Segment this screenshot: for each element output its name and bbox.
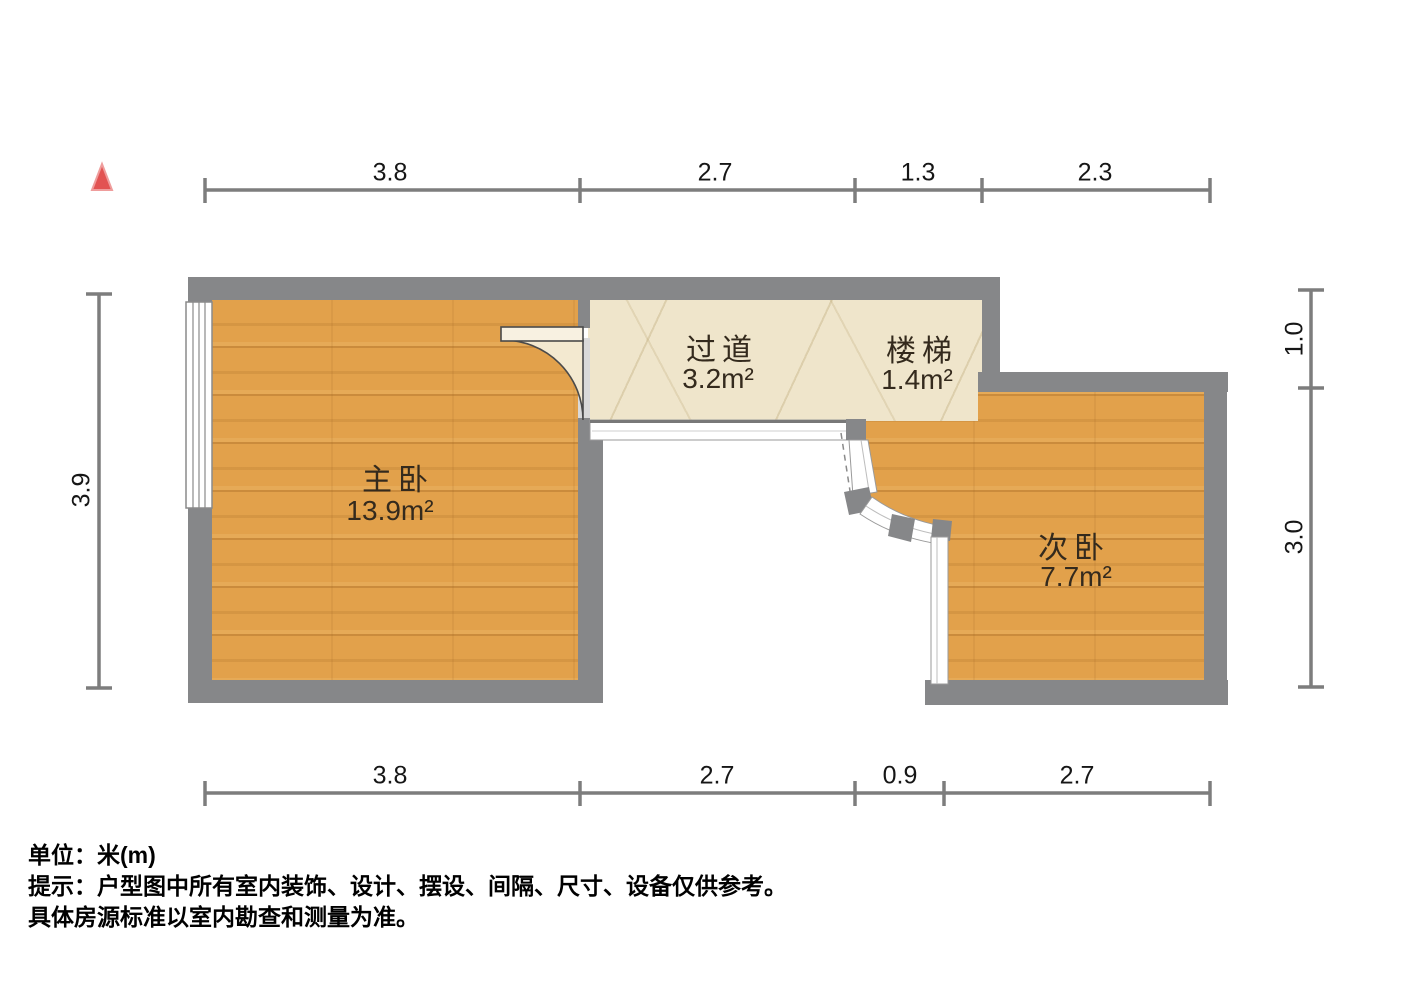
room-area-second-bedroom: 7.7m²	[1040, 561, 1112, 593]
stair-railing	[590, 419, 952, 684]
wall-door-jamb-top	[578, 300, 590, 328]
floor-plan: 主卧 13.9m² 过道 3.2m² 楼梯 1.4m² 次卧 7.7m² 3.8…	[0, 0, 1415, 982]
door	[501, 327, 590, 420]
dim-top-4: 2.3	[1078, 159, 1113, 188]
wall-right	[1204, 372, 1227, 705]
room-area-master-bedroom: 13.9m²	[346, 495, 433, 527]
dim-top-3: 1.3	[901, 159, 936, 188]
north-arrow-icon	[92, 164, 112, 190]
railing-post	[888, 514, 915, 542]
wall-bottom-master	[188, 680, 603, 703]
wall-stair-right	[982, 277, 1000, 372]
dim-left-1: 3.9	[68, 473, 97, 508]
room-name-master-bedroom: 主卧	[362, 455, 434, 499]
railing-post	[846, 419, 866, 440]
plan-graphics	[0, 0, 1415, 982]
room-area-corridor: 3.2m²	[682, 363, 754, 395]
door-swing-arc	[503, 340, 583, 420]
wall-top	[188, 277, 1000, 300]
dimension-lines	[86, 178, 1324, 806]
dim-right-1: 1.0	[1281, 322, 1310, 357]
dim-right-2: 3.0	[1281, 520, 1310, 555]
disclaimer-line-1: 提示：户型图中所有室内装饰、设计、摆设、间隔、尺寸、设备仅供参考。	[28, 871, 787, 902]
wall-second-top	[978, 372, 1228, 392]
unit-note: 单位：米(m)	[28, 840, 787, 871]
window	[186, 302, 212, 508]
dim-top-2: 2.7	[698, 159, 733, 188]
dim-bottom-3: 0.9	[883, 762, 918, 791]
wall-bottom-second	[925, 680, 1228, 705]
room-area-stairs: 1.4m²	[881, 364, 953, 396]
dim-bottom-2: 2.7	[700, 762, 735, 791]
disclaimer-line-2: 具体房源标准以室内勘查和测量为准。	[28, 902, 787, 933]
dim-bottom-4: 2.7	[1060, 762, 1095, 791]
dim-bottom-1: 3.8	[373, 762, 408, 791]
footer-notes: 单位：米(m) 提示：户型图中所有室内装饰、设计、摆设、间隔、尺寸、设备仅供参考…	[28, 840, 787, 933]
wall-master-right	[578, 440, 603, 682]
dim-top-1: 3.8	[373, 159, 408, 188]
door-leaf	[501, 327, 583, 341]
wall-door-jamb-bottom	[578, 417, 590, 442]
